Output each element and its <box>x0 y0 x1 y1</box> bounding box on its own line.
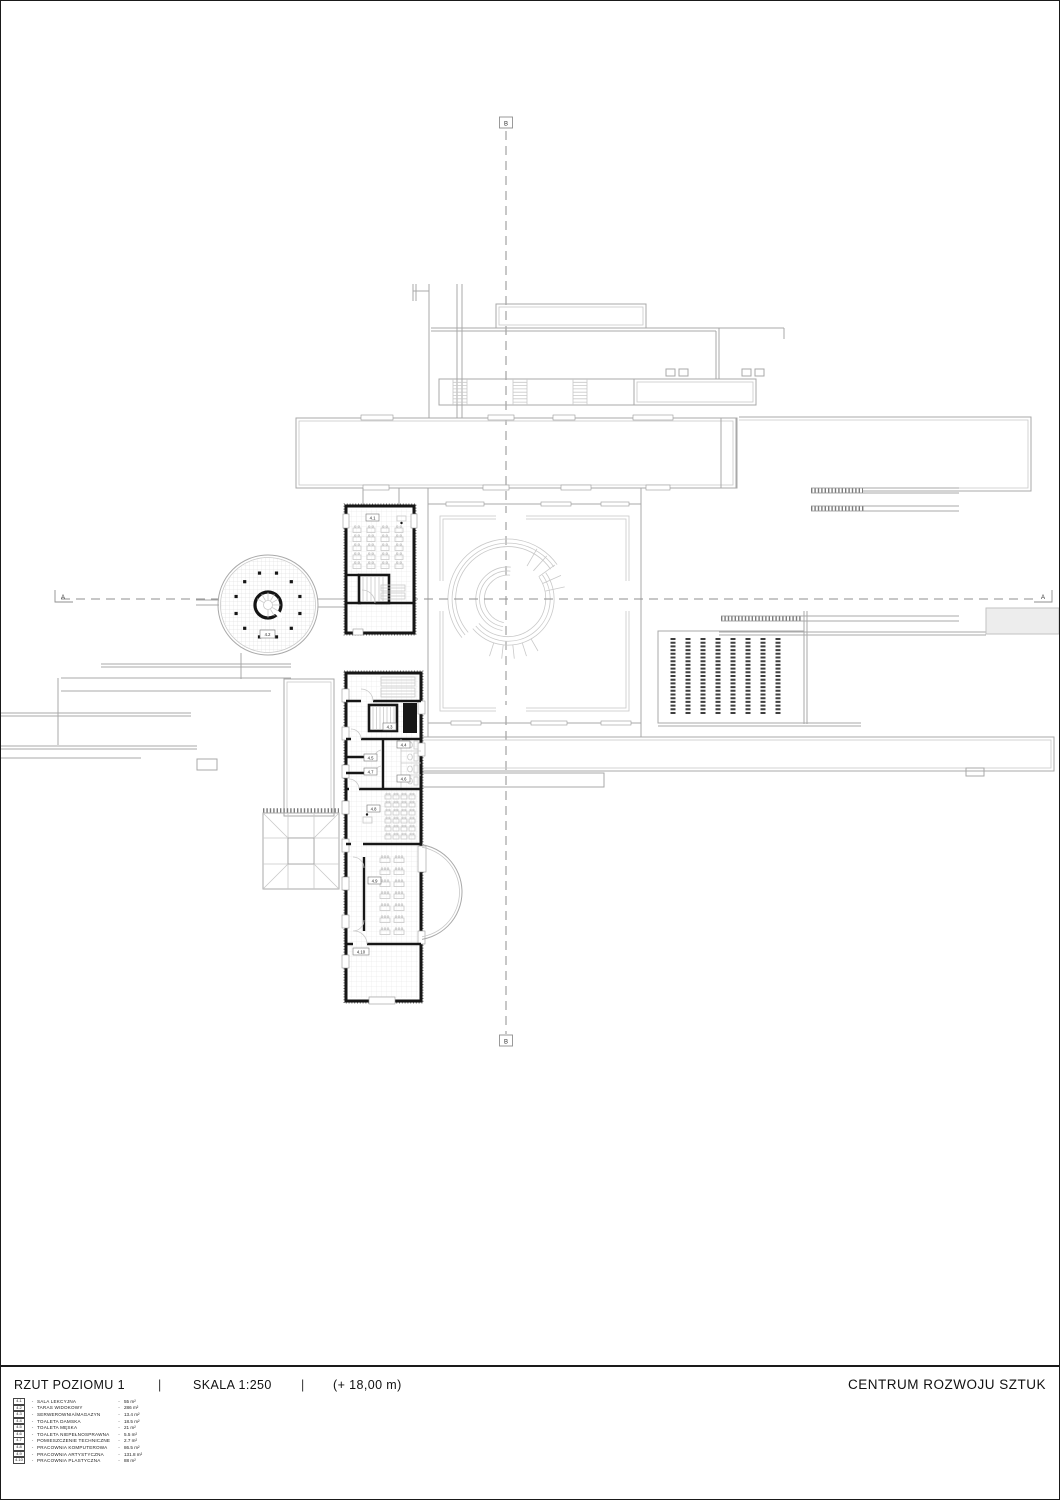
legend-room-area: 5.5 m² <box>124 1432 137 1437</box>
title-block-divider <box>1 1365 1059 1367</box>
drawing-sheet: 4.2 <box>0 0 1060 1500</box>
legend-room-area: 13.4 m² <box>124 1412 140 1417</box>
legend-separator: - <box>28 1405 37 1410</box>
legend-separator: - <box>114 1399 124 1404</box>
legend-separator: - <box>28 1425 37 1430</box>
legend-row: 4.7 - POMIESZCZENIE TECHNICZNE - 2.7 m² <box>13 1438 142 1445</box>
classroom-block: 4.1 <box>343 504 417 635</box>
room-tag-label: 4.1 <box>370 515 376 520</box>
title-separator: | <box>158 1378 162 1392</box>
legend-row: 4.4 - TOALETA DAMSKA - 18.5 m² <box>13 1418 142 1425</box>
legend-row: 4.6 - TOALETA NIEPEŁNOSPRAWNA - 5.5 m² <box>13 1431 142 1438</box>
legend-room-name: SALA LEKCYJNA <box>37 1399 114 1404</box>
project-title: CENTRUM ROZWOJU SZTUK <box>848 1377 1046 1392</box>
drawing-title: RZUT POZIOMU 1 <box>14 1378 125 1392</box>
legend-separator: - <box>28 1412 37 1417</box>
room-tag: 4.8 <box>367 805 380 812</box>
room-tag: 4.9 <box>368 877 381 884</box>
central-hall <box>428 502 641 737</box>
floor-plan-drawing: 4.2 <box>1 1 1060 1365</box>
room-tag: 4.10 <box>353 948 369 955</box>
legend-separator: - <box>114 1412 124 1417</box>
legend-separator: - <box>28 1432 37 1437</box>
legend-row: 4.3 - SERWEROWNIA/MAGAZYN - 13.4 m² <box>13 1411 142 1418</box>
legend-room-tag: 4.10 <box>13 1457 25 1464</box>
legend-separator: - <box>28 1458 37 1463</box>
room-tag: 4.2 <box>260 630 275 638</box>
upper-building <box>413 284 784 418</box>
legend-separator: - <box>28 1419 37 1424</box>
legend-row: 4.5 - TOALETA MĘSKA - 21 m² <box>13 1424 142 1431</box>
lower-wing: 4.3 4.4 4.5 4.6 4.7 4.8 4.9 4.10 <box>342 671 426 1004</box>
legend-separator: - <box>114 1419 124 1424</box>
legend-row: 4.10 - PRACOWNIA PLASTYCZNA - 88 m² <box>13 1457 142 1464</box>
legend-separator: - <box>28 1438 37 1443</box>
skylight-grid <box>263 811 339 890</box>
legend-row: 4.2 - TARAS WIDOKOWY - 286 m² <box>13 1405 142 1412</box>
room-tag-label: 4.4 <box>401 742 407 747</box>
room-tag-label: 4.8 <box>371 806 377 811</box>
ramp-lines <box>1 653 291 770</box>
scale-label: SKALA 1:250 <box>193 1378 272 1392</box>
legend-room-area: 86.5 m² <box>124 1445 140 1450</box>
room-tag-label: 4.7 <box>368 769 374 774</box>
lower-terrace-bands <box>419 737 1054 787</box>
legend-room-area: 131.8 m² <box>124 1452 142 1457</box>
legend-room-name: PRACOWNIA ARTYSTYCZNA <box>37 1452 114 1457</box>
legend-room-area: 2.7 m² <box>124 1438 137 1443</box>
room-tag-label: 4.6 <box>401 776 407 781</box>
legend-room-area: 286 m² <box>124 1405 138 1410</box>
legend-room-name: TARAS WIDOKOWY <box>37 1405 114 1410</box>
room-tag: 4.6 <box>397 775 410 782</box>
legend-room-name: TOALETA DAMSKA <box>37 1419 114 1424</box>
axis-b-label-top: B <box>504 121 508 127</box>
legend-room-name: TOALETA MĘSKA <box>37 1425 114 1430</box>
room-legend: 4.1 - SALA LEKCYJNA - 55 m² 4.2 - TARAS … <box>13 1398 142 1464</box>
axis-b-label-bottom: B <box>504 1039 508 1045</box>
legend-separator: - <box>28 1452 37 1457</box>
walkway-lines-right <box>719 488 1059 635</box>
legend-room-area: 18.5 m² <box>124 1419 140 1424</box>
legend-room-area: 55 m² <box>124 1399 136 1404</box>
room-tag-label: 4.9 <box>372 878 378 883</box>
room-tag: 4.3 <box>383 723 396 730</box>
legend-room-name: SERWEROWNIA/MAGAZYN <box>37 1412 114 1417</box>
legend-room-name: TOALETA NIEPEŁNOSPRAWNA <box>37 1432 114 1437</box>
title-separator: | <box>301 1378 305 1392</box>
legend-separator: - <box>28 1399 37 1404</box>
viewing-terrace-pavilion: 4.2 <box>196 555 346 655</box>
legend-separator: - <box>114 1452 124 1457</box>
room-tag: 4.7 <box>364 768 377 775</box>
legend-room-name: PRACOWNIA KOMPUTEROWA <box>37 1445 114 1450</box>
legend-row: 4.8 - PRACOWNIA KOMPUTEROWA - 86.5 m² <box>13 1444 142 1451</box>
legend-separator: - <box>114 1405 124 1410</box>
room-tag: 4.4 <box>397 741 410 748</box>
legend-room-area: 88 m² <box>124 1458 136 1463</box>
legend-separator: - <box>114 1445 124 1450</box>
legend-separator: - <box>28 1445 37 1450</box>
entry-slab <box>296 415 1031 506</box>
room-tag: 4.5 <box>364 754 377 761</box>
legend-room-name: PRACOWNIA PLASTYCZNA <box>37 1458 114 1463</box>
room-tag-label: 4.3 <box>387 724 393 729</box>
legend-row: 4.1 - SALA LEKCYJNA - 55 m² <box>13 1398 142 1405</box>
legend-separator: - <box>114 1432 124 1437</box>
room-tag: 4.1 <box>366 514 379 521</box>
legend-separator: - <box>114 1458 124 1463</box>
room-tag-label: 4.10 <box>357 949 366 954</box>
legend-separator: - <box>114 1425 124 1430</box>
pergola-louvers <box>658 611 861 726</box>
legend-room-area: 21 m² <box>124 1425 136 1430</box>
corridor <box>284 679 334 816</box>
room-tag-label: 4.2 <box>265 632 271 637</box>
legend-row: 4.9 - PRACOWNIA ARTYSTYCZNA - 131.8 m² <box>13 1451 142 1458</box>
axis-a-label-right: A <box>1041 595 1045 601</box>
legend-room-name: POMIESZCZENIE TECHNICZNE <box>37 1438 114 1443</box>
slab-openings <box>361 415 673 490</box>
axis-a-label-left: A <box>61 595 65 601</box>
legend-separator: - <box>114 1438 124 1443</box>
level-label: (+ 18,00 m) <box>333 1378 402 1392</box>
axis-markers: B B A A <box>55 117 1052 1046</box>
room-tag-label: 4.5 <box>368 755 374 760</box>
stair-runs <box>453 379 587 405</box>
